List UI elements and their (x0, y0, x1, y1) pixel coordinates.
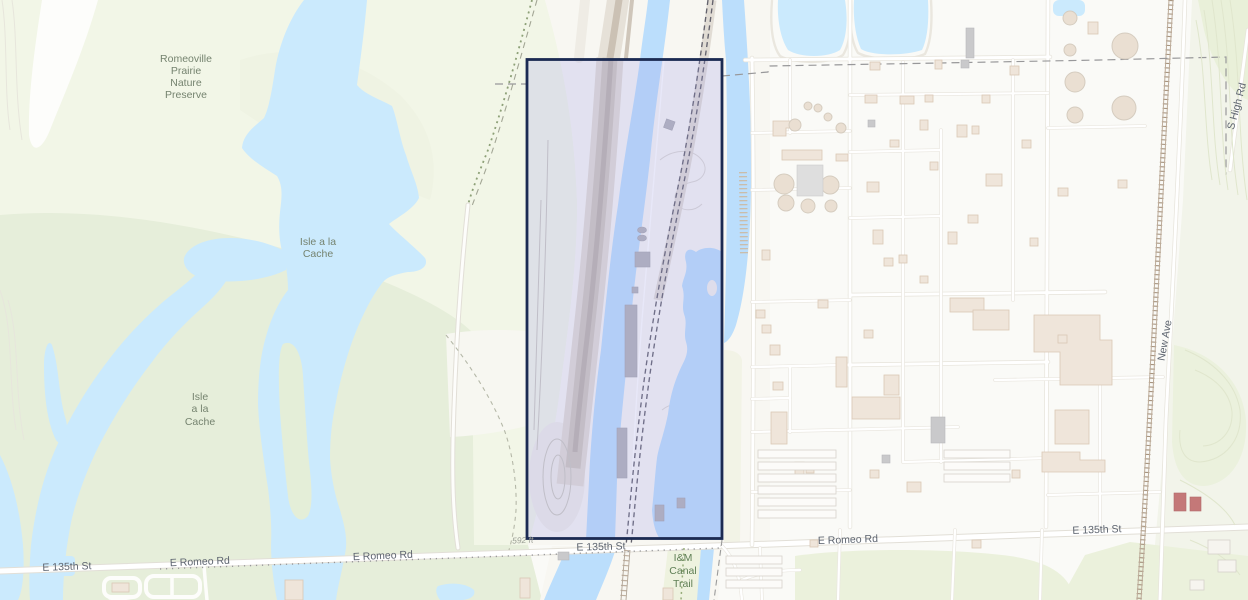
svg-text:Nature: Nature (170, 77, 202, 89)
svg-text:E 135th St: E 135th St (576, 540, 625, 553)
svg-text:E 135th St: E 135th St (1072, 523, 1122, 537)
svg-text:I&M: I&M (674, 552, 693, 564)
svg-text:Prairie: Prairie (171, 65, 202, 77)
svg-text:Isle a la: Isle a la (300, 236, 336, 248)
svg-text:Canal: Canal (669, 565, 696, 577)
svg-text:Romeoville: Romeoville (160, 53, 212, 65)
svg-text:Trail: Trail (673, 578, 693, 590)
svg-text:E Romeo Rd: E Romeo Rd (818, 533, 879, 547)
svg-text:Cache: Cache (303, 248, 334, 260)
svg-text:592 ft: 592 ft (512, 535, 534, 546)
svg-text:Cache: Cache (185, 416, 216, 428)
svg-text:E 135th St: E 135th St (42, 560, 92, 574)
svg-text:Isle: Isle (192, 391, 209, 403)
svg-text:Preserve: Preserve (165, 89, 207, 101)
svg-text:a la: a la (192, 403, 209, 415)
